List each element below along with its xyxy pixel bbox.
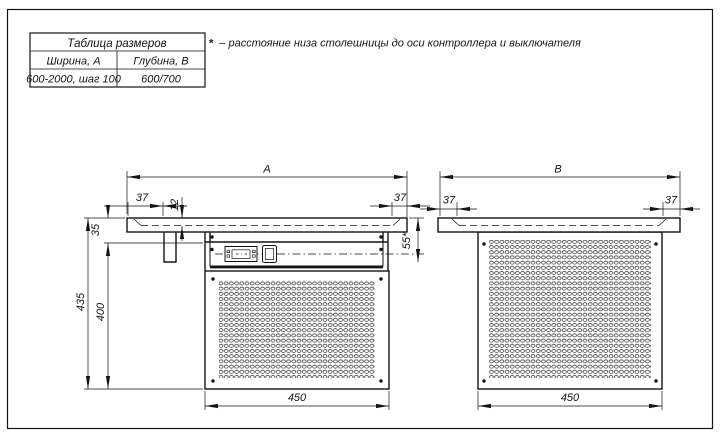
dim-435-text: 435 [75, 292, 87, 311]
dim-overhang-left-side: 37 [420, 195, 477, 217]
dim-37fr-text: 37 [394, 192, 407, 204]
footnote-body: – расстояние низа столешницы до оси конт… [218, 38, 581, 50]
technical-drawing-page: Таблица размеров Ширина, А Глубина, В 60… [0, 0, 720, 438]
controller-strip [210, 242, 383, 267]
dim-panel-width-side: 450 [478, 391, 662, 410]
perforated-panel-side [478, 232, 662, 389]
dim-37sl-text: 37 [443, 195, 456, 207]
dim-55-text: 55* [401, 232, 413, 249]
size-table-header-width: Ширина, А [46, 56, 100, 68]
size-table-value-depth: 600/700 [141, 74, 182, 86]
dim-B-text: В [554, 164, 561, 176]
dim-400-text: 400 [95, 302, 107, 321]
dim-450s-text: 450 [561, 392, 580, 404]
size-table-title: Таблица размеров [67, 38, 166, 50]
footnote-text: *– расстояние низа столешницы до оси кон… [209, 38, 581, 50]
perforation-side [489, 240, 651, 378]
dim-overhang-right-side: 37 [643, 195, 700, 217]
dim-35-text: 35 [90, 223, 102, 236]
tabletop-front [127, 218, 407, 232]
front-view: А 37 12 435 400 35 450 [75, 164, 430, 411]
tabletop-side-outline [438, 218, 680, 232]
size-table-value-width: 600-2000, шаг 100 [26, 74, 122, 86]
tabletop-front-outline [127, 218, 407, 232]
perforated-panel-front [205, 271, 389, 389]
dim-depth-B: В [440, 164, 680, 217]
dim-450f-text: 450 [288, 392, 307, 404]
controller [225, 247, 257, 262]
size-table: Таблица размеров Ширина, А Глубина, В 60… [26, 33, 205, 87]
drawing-canvas: Таблица размеров Ширина, А Глубина, В 60… [0, 0, 720, 438]
dim-37fl-extensions [128, 202, 163, 216]
dim-panel-width-front: 450 [205, 391, 389, 410]
dim-12-text: 12 [169, 199, 181, 211]
size-table-header-depth: Глубина, В [133, 56, 188, 68]
power-switch [263, 246, 277, 263]
footnote-marker: * [209, 38, 214, 50]
dim-37fl-text: 37 [136, 192, 149, 204]
dim-overhang-right-front: 37 [370, 192, 430, 216]
leg-bracket [164, 232, 176, 262]
perforation-front [219, 280, 375, 378]
side-view: В 37 37 450 [420, 164, 700, 411]
footnote: *– расстояние низа столешницы до оси кон… [209, 38, 581, 50]
power-switch-body [263, 246, 277, 263]
dim-A-text: А [262, 164, 270, 176]
tabletop-side [438, 218, 680, 232]
dim-37sr-text: 37 [665, 195, 678, 207]
